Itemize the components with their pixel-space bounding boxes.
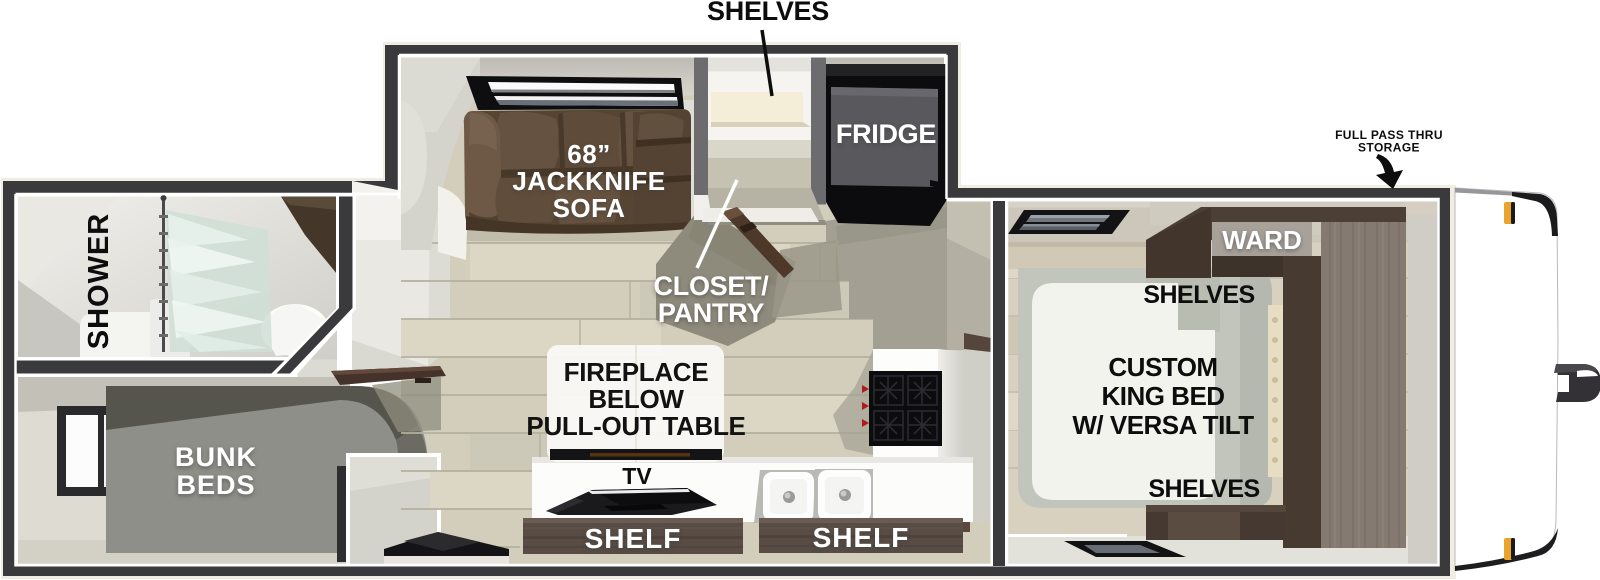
svg-text:SHELF: SHELF bbox=[813, 522, 910, 553]
svg-text:W/ VERSA TILT: W/ VERSA TILT bbox=[1072, 410, 1254, 440]
svg-text:SHELVES: SHELVES bbox=[707, 0, 829, 26]
svg-text:CUSTOM: CUSTOM bbox=[1108, 352, 1217, 382]
svg-text:PULL-OUT TABLE: PULL-OUT TABLE bbox=[526, 411, 745, 441]
svg-text:JACKKNIFE: JACKKNIFE bbox=[512, 166, 665, 196]
svg-text:BELOW: BELOW bbox=[588, 384, 684, 414]
svg-text:SOFA: SOFA bbox=[553, 193, 626, 223]
svg-text:BUNK: BUNK bbox=[175, 442, 257, 472]
svg-text:SHELF: SHELF bbox=[585, 523, 682, 554]
svg-text:SHELVES: SHELVES bbox=[1148, 475, 1259, 503]
svg-text:STORAGE: STORAGE bbox=[1358, 141, 1420, 155]
svg-text:KING BED: KING BED bbox=[1101, 381, 1224, 411]
svg-text:BEDS: BEDS bbox=[176, 470, 255, 500]
svg-text:FIREPLACE: FIREPLACE bbox=[564, 357, 709, 387]
svg-text:WARD: WARD bbox=[1222, 225, 1301, 255]
svg-text:68”: 68” bbox=[567, 139, 610, 169]
svg-text:TV: TV bbox=[622, 463, 652, 489]
svg-text:SHOWER: SHOWER bbox=[83, 213, 115, 350]
svg-text:FRIDGE: FRIDGE bbox=[836, 119, 936, 149]
svg-text:PANTRY: PANTRY bbox=[658, 298, 764, 328]
svg-text:CLOSET/: CLOSET/ bbox=[654, 271, 770, 301]
svg-text:SHELVES: SHELVES bbox=[1143, 281, 1254, 309]
